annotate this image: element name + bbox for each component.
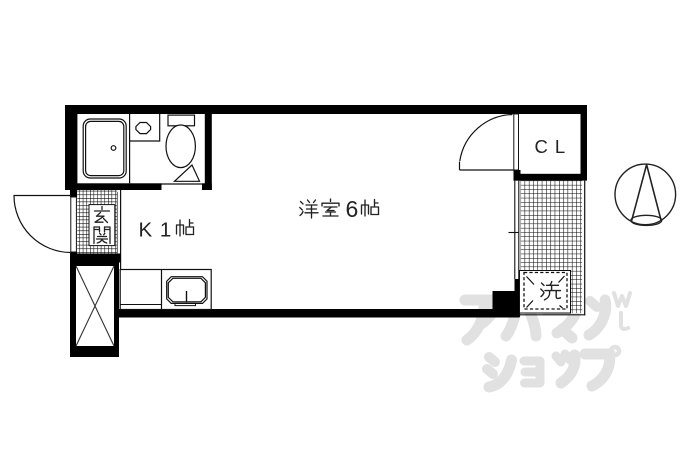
svg-text:K 1: K 1 [139, 219, 173, 242]
svg-text:6: 6 [346, 196, 359, 222]
svg-text:CL: CL [535, 136, 573, 157]
